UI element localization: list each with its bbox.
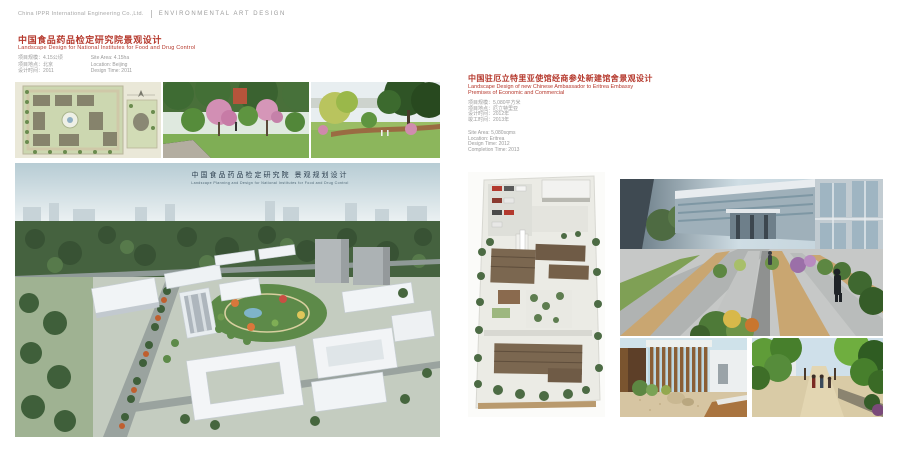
tree-lined-walkway-photo xyxy=(752,338,883,417)
meta-line: Site Area: 4.15ha xyxy=(91,55,132,62)
company-name: China IPPR International Engineering Co.… xyxy=(18,11,144,17)
master-plan-art xyxy=(15,82,161,158)
meta-line: Completion Time: 2013 xyxy=(468,148,519,154)
meta-line: 竣工时间：2013年 xyxy=(468,118,521,124)
aerial-rendering-art xyxy=(15,163,440,437)
header-divider xyxy=(151,10,152,18)
left-project-title-en: Landscape Design for National Institutes… xyxy=(18,45,195,51)
master-plan-image xyxy=(15,82,161,158)
left-project-meta: 项目规模：4.15公顷 项目地点：北京 设计时间：2011 Site Area:… xyxy=(18,55,132,75)
aerial-watermark-en: Landscape Planning and Design for Nation… xyxy=(175,181,365,185)
blossom-park-art xyxy=(163,82,309,158)
tree-lined-walkway-art xyxy=(752,338,883,417)
meta-column-en: Site Area: 4.15ha Location: Beijing Desi… xyxy=(91,55,132,75)
embassy-site-plan-art xyxy=(468,172,605,417)
aerial-watermark: 中国食品药品检定研究院 景观规划设计 Landscape Planning an… xyxy=(175,170,365,185)
meta-line: Location: Beijing xyxy=(91,62,132,69)
timber-screen-garden-art xyxy=(620,338,747,417)
right-project-title-cn: 中国驻厄立特里亚使馆经商参处新建馆舍景观设计 xyxy=(468,73,678,84)
section-title: ENVIRONMENTAL ART DESIGN xyxy=(159,11,286,17)
aerial-watermark-cn: 中国食品药品检定研究院 景观规划设计 xyxy=(175,170,365,180)
embassy-site-plan-image xyxy=(468,172,605,417)
timber-screen-garden-photo xyxy=(620,338,747,417)
lawn-park-art xyxy=(311,82,440,158)
blossom-park-photo xyxy=(163,82,309,158)
lawn-park-photo xyxy=(311,82,440,158)
courtyard-rendering-art xyxy=(620,179,883,336)
courtyard-rendering-image xyxy=(620,179,883,336)
page-header: China IPPR International Engineering Co.… xyxy=(18,10,286,18)
meta-line: Design Time: 2011 xyxy=(91,68,132,75)
right-project-title-en: Landscape Design of new Chinese Ambassad… xyxy=(468,84,658,96)
meta-line: 设计时间：2011 xyxy=(18,68,63,75)
right-project-meta-en: Site Area: 5,080sqms Location: Eritrea D… xyxy=(468,131,519,153)
meta-line: 项目规模：4.15公顷 xyxy=(18,55,63,62)
right-project-meta-cn: 项目规模：5,080平方米 项目地点：厄立特里亚 设计时间：2012年 竣工时间… xyxy=(468,101,521,123)
aerial-rendering-image: 中国食品药品检定研究院 景观规划设计 Landscape Planning an… xyxy=(15,163,440,437)
brochure-spread: { "header": { "company": "China IPPR Int… xyxy=(0,0,900,450)
meta-column-cn: 项目规模：4.15公顷 项目地点：北京 设计时间：2011 xyxy=(18,55,63,75)
title-en-line2: Premises of Economic and Commercial xyxy=(468,90,658,96)
